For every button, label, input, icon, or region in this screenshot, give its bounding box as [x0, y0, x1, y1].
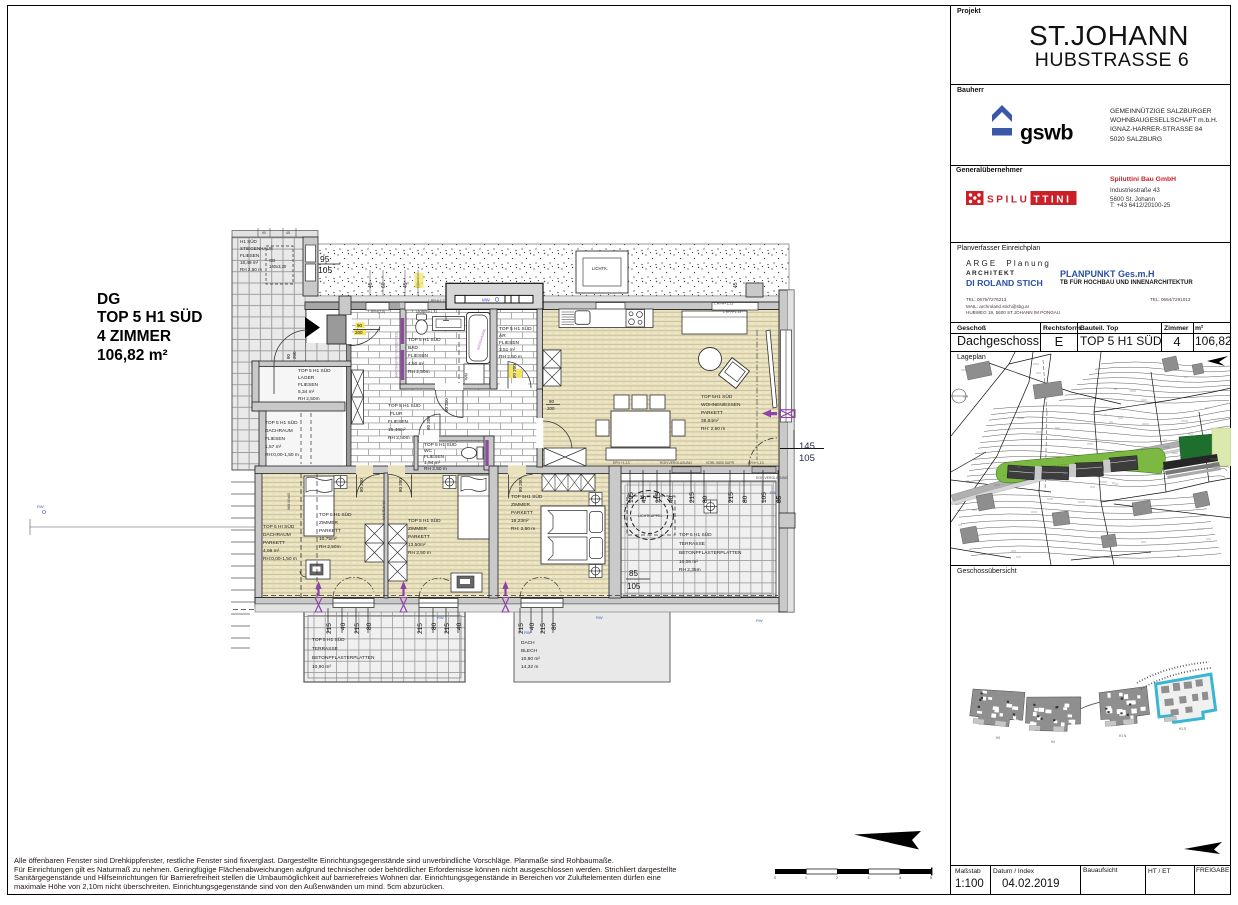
svg-text:STIEGENHAUS: STIEGENHAUS [240, 246, 273, 251]
svg-text:TOP 5 H1 SÜD: TOP 5 H1 SÜD [679, 531, 712, 538]
svg-text:FLIESEN: FLIESEN [388, 419, 409, 425]
svg-text:RH 2,60 m: RH 2,60 m [240, 267, 262, 272]
svg-text:10,90 m²: 10,90 m² [521, 656, 540, 662]
svg-text:RH:0,00-1,50 m: RH:0,00-1,50 m [263, 556, 297, 562]
svg-text:80 200: 80 200 [518, 478, 523, 492]
svg-text:60: 60 [381, 282, 387, 288]
svg-text:80: 80 [549, 399, 555, 404]
svg-text:TOP 5 H1 SÜD: TOP 5 H1 SÜD [298, 367, 331, 374]
svg-text:40: 40 [340, 622, 347, 630]
svg-text:45: 45 [286, 231, 290, 235]
svg-text:RH 2,50m: RH 2,50m [319, 544, 341, 550]
svg-text:ZIMMER: ZIMMER [319, 520, 338, 526]
svg-text:L RFH+1,13: L RFH+1,13 [714, 302, 733, 306]
svg-text:4,99 m²: 4,99 m² [263, 548, 280, 554]
svg-text:105: 105 [761, 492, 768, 503]
svg-text:80: 80 [702, 495, 709, 503]
svg-text:RW: RW [524, 630, 531, 635]
svg-text:WM 60x60: WM 60x60 [287, 493, 291, 510]
svg-text:145: 145 [799, 441, 815, 452]
svg-text:RH 2,50 m: RH 2,50 m [424, 466, 447, 472]
svg-text:80: 80 [366, 622, 373, 630]
svg-text:DACHRAUM: DACHRAUM [265, 428, 293, 434]
svg-text:105: 105 [628, 492, 635, 503]
svg-text:BAD: BAD [408, 345, 418, 351]
svg-text:18,49 m²: 18,49 m² [240, 260, 259, 265]
svg-text:TTINI: TTINI [1034, 195, 1072, 206]
svg-text:215: 215 [540, 623, 547, 634]
svg-text:KASTEN 60: KASTEN 60 [382, 501, 386, 520]
svg-text:TOP 5H1 SÜD: TOP 5H1 SÜD [701, 393, 733, 400]
svg-text:45: 45 [641, 495, 648, 503]
svg-text:PARKETT: PARKETT [511, 510, 533, 516]
svg-text:FLIESEN: FLIESEN [298, 382, 319, 388]
svg-text:215: 215 [728, 492, 735, 503]
svg-text:16,23m²: 16,23m² [511, 518, 529, 524]
svg-text:80 200: 80 200 [444, 398, 449, 412]
svg-text:RH: 2,50 m: RH: 2,50 m [701, 426, 725, 432]
svg-text:10,06 m²: 10,06 m² [679, 559, 698, 565]
svg-text:38,84m²: 38,84m² [701, 418, 719, 424]
svg-text:1,94 m²: 1,94 m² [424, 460, 441, 466]
svg-text:RW: RW [770, 490, 777, 495]
svg-text:RW: RW [37, 504, 44, 509]
svg-text:TOP 5 H1 SÜD: TOP 5 H1 SÜD [424, 441, 457, 448]
svg-text:45: 45 [403, 282, 409, 288]
svg-text:85: 85 [776, 495, 783, 503]
svg-text:40: 40 [456, 622, 463, 630]
svg-text:LICHTKUPPEL: LICHTKUPPEL [638, 514, 663, 518]
svg-text:140x3,30: 140x3,30 [269, 264, 287, 269]
svg-text:TOP 5 H1 SÜD: TOP 5 H1 SÜD [499, 325, 532, 332]
svg-text:215: 215 [417, 623, 424, 634]
svg-text:RW: RW [756, 618, 763, 623]
svg-text:PARKETT: PARKETT [319, 528, 341, 534]
svg-text:H1 SÜD: H1 SÜD [240, 238, 258, 244]
svg-text:ROH.VERGLASUNG: ROH.VERGLASUNG [756, 476, 788, 480]
svg-text:3,51 m²: 3,51 m² [499, 347, 516, 353]
svg-text:WC: WC [424, 448, 433, 454]
svg-text:H3: H3 [996, 736, 1000, 740]
svg-text:5,34 m²: 5,34 m² [298, 389, 315, 395]
svg-text:RW: RW [596, 615, 603, 620]
svg-text:LICHTK.: LICHTK. [592, 266, 608, 271]
svg-text:105: 105 [318, 265, 332, 275]
svg-text:95: 95 [320, 254, 330, 264]
svg-text:80: 80 [551, 622, 558, 630]
svg-text:80: 80 [431, 622, 438, 630]
svg-text:45: 45 [368, 282, 374, 288]
svg-text:WM: WM [465, 373, 469, 380]
svg-text:15,46m²: 15,46m² [388, 427, 406, 433]
svg-text:LAGER: LAGER [298, 375, 315, 381]
svg-text:FLUR: FLUR [390, 411, 403, 417]
svg-text:RH:0,00-1,50 m: RH:0,00-1,50 m [265, 452, 299, 458]
svg-text:200: 200 [547, 406, 555, 411]
svg-text:85: 85 [629, 569, 638, 578]
svg-text:TOP 5 H1 SÜD: TOP 5 H1 SÜD [265, 419, 298, 426]
svg-text:10,90 m²: 10,90 m² [312, 664, 331, 670]
svg-text:FLIESEN: FLIESEN [499, 340, 520, 346]
svg-text:40: 40 [529, 622, 536, 630]
svg-text:FLIESEN: FLIESEN [408, 353, 429, 359]
svg-text:RH 2,50 m: RH 2,50 m [499, 354, 522, 360]
svg-text:45: 45 [733, 282, 739, 288]
svg-text:TOP 5 H1 SÜD: TOP 5 H1 SÜD [319, 511, 352, 518]
svg-text:BLECH: BLECH [521, 648, 538, 654]
svg-text:80 200: 80 200 [359, 478, 364, 492]
svg-text:RH 2,50m: RH 2,50m [298, 396, 320, 402]
svg-text:TOP 5 HI SÜD: TOP 5 HI SÜD [263, 523, 295, 530]
svg-text:TERRASSE: TERRASSE [312, 646, 338, 652]
svg-text:215: 215 [689, 492, 696, 503]
svg-text:RW: RW [437, 615, 444, 620]
svg-text:FLIESEN: FLIESEN [240, 253, 259, 258]
svg-text:TOP 5 H1 SÜD: TOP 5 H1 SÜD [408, 336, 441, 343]
svg-text:ROH.VERGLASUNG: ROH.VERGLASUNG [660, 461, 692, 465]
svg-text:215: 215 [444, 623, 451, 634]
svg-text:H2: H2 [1051, 740, 1055, 744]
svg-text:4,50 m²: 4,50 m² [408, 361, 425, 367]
svg-text:14,32 m: 14,32 m [521, 664, 538, 670]
svg-text:TOP 5H1 SÜD: TOP 5H1 SÜD [511, 493, 543, 500]
svg-text:TOP 5 H1 SÜD: TOP 5 H1 SÜD [408, 517, 441, 524]
svg-text:TERRASSE: TERRASSE [679, 541, 705, 547]
svg-text:1,57 m²: 1,57 m² [265, 444, 282, 450]
svg-text:ZIMMER: ZIMMER [408, 526, 427, 532]
svg-text:215: 215 [354, 623, 361, 634]
svg-text:SPILU: SPILU [987, 195, 1029, 206]
svg-text:DACHRAUM: DACHRAUM [263, 532, 291, 538]
svg-text:BETONPFLASTERPLATTEN: BETONPFLASTERPLATTEN [679, 550, 742, 556]
svg-text:13,50m²: 13,50m² [408, 542, 426, 548]
svg-text:DACH: DACH [521, 640, 535, 646]
svg-text:FLIESEN: FLIESEN [424, 454, 445, 460]
svg-text:200: 200 [355, 330, 363, 335]
svg-text:BARRIEREFREI WENDEKREIS: BARRIEREFREI WENDEKREIS [395, 332, 399, 378]
svg-text:80 200: 80 200 [398, 478, 403, 492]
svg-text:10,75m²: 10,75m² [319, 536, 337, 542]
svg-text:PARKETT: PARKETT [263, 540, 285, 546]
svg-text:VORL.9800 SUPR: VORL.9800 SUPR [706, 461, 735, 465]
svg-text:PARKETT: PARKETT [408, 534, 430, 540]
svg-text:FLIESEN: FLIESEN [265, 436, 286, 442]
svg-text:105: 105 [627, 582, 641, 591]
svg-text:RH 2,35m: RH 2,35m [679, 567, 701, 573]
svg-text:GD: GD [269, 258, 275, 263]
svg-text:RFH(2,0): RFH(2,0) [371, 310, 385, 314]
svg-text:gswb: gswb [1020, 121, 1073, 145]
svg-text:H1 N: H1 N [1119, 734, 1127, 738]
svg-text:ZIMMER: ZIMMER [511, 502, 530, 508]
svg-text:80: 80 [286, 353, 291, 359]
svg-text:215: 215 [326, 623, 333, 634]
svg-text:105: 105 [799, 453, 815, 464]
svg-text:WOHNEN/ESSEN: WOHNEN/ESSEN [701, 402, 741, 408]
svg-text:40: 40 [668, 495, 675, 503]
svg-text:L RFH+1,13: L RFH+1,13 [723, 310, 741, 314]
svg-text:RH: 2,50 m: RH: 2,50 m [511, 526, 535, 532]
svg-text:MW: MW [482, 298, 491, 303]
svg-text:AR: AR [499, 333, 506, 339]
svg-text:80 200: 80 200 [426, 416, 431, 430]
svg-text:UK/RFH+1,73: UK/RFH+1,73 [416, 310, 437, 314]
svg-text:90: 90 [357, 323, 363, 328]
svg-text:TOP 5 H1 SÜD: TOP 5 H1 SÜD [312, 636, 345, 643]
svg-text:80 200: 80 200 [512, 364, 517, 378]
svg-text:L RFH+1,73: L RFH+1,73 [428, 299, 446, 303]
svg-text:RH 2,50m: RH 2,50m [408, 369, 430, 375]
svg-text:RFH +1,13: RFH +1,13 [613, 461, 630, 465]
svg-text:80: 80 [742, 495, 749, 503]
svg-text:200: 200 [292, 351, 297, 359]
svg-text:RFH+1,13: RFH+1,13 [748, 461, 764, 465]
svg-text:PARKETT: PARKETT [701, 410, 723, 416]
svg-text:90: 90 [262, 231, 266, 235]
svg-text:TOP 5 H1 SÜD: TOP 5 H1 SÜD [388, 402, 421, 409]
svg-text:215: 215 [655, 492, 662, 503]
svg-text:BETONPFLASTERPLATTEN: BETONPFLASTERPLATTEN [312, 655, 375, 661]
svg-text:H1 S: H1 S [1179, 727, 1186, 731]
svg-text:RH 2,50m: RH 2,50m [388, 435, 410, 441]
svg-text:RH 2,50 m: RH 2,50 m [408, 550, 431, 556]
